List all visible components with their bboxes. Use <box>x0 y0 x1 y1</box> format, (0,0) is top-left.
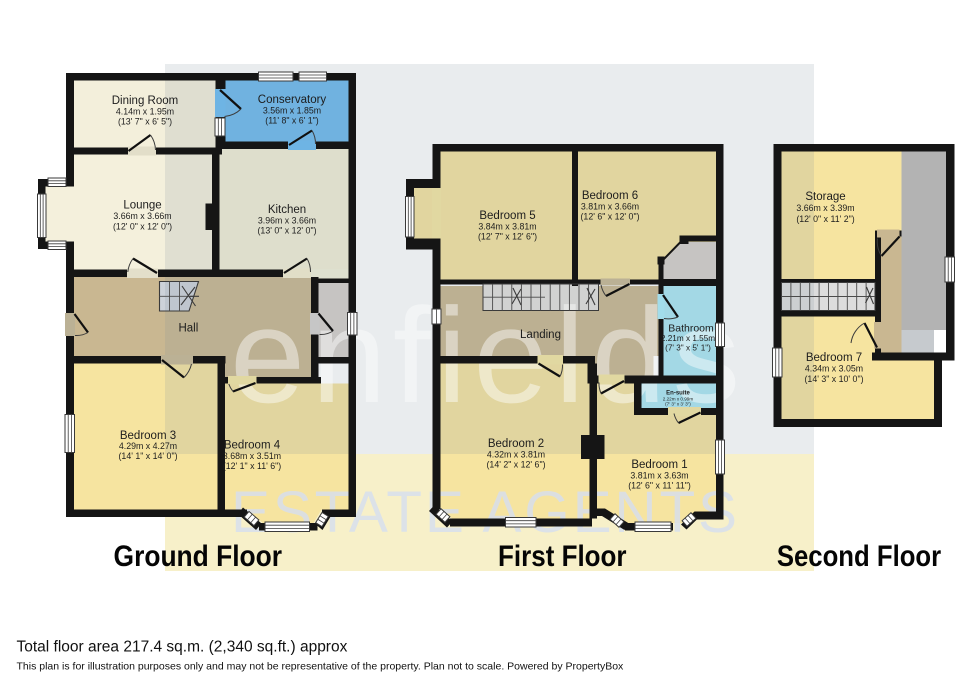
svg-text:Bedroom 7: Bedroom 7 <box>806 352 862 364</box>
svg-text:3.66m x 3.39m: 3.66m x 3.39m <box>796 203 854 213</box>
svg-text:Bedroom 1: Bedroom 1 <box>631 459 687 471</box>
svg-text:Hall: Hall <box>178 323 198 335</box>
svg-text:Storage: Storage <box>805 191 845 203</box>
svg-text:3.68m x 3.51m: 3.68m x 3.51m <box>223 451 281 461</box>
svg-text:(12' 6" x 12' 0"): (12' 6" x 12' 0") <box>581 212 640 222</box>
svg-text:(7' 3" x 5' 1"): (7' 3" x 5' 1") <box>665 344 711 353</box>
svg-text:Second Floor: Second Floor <box>777 540 942 573</box>
svg-text:3.66m x 3.66m: 3.66m x 3.66m <box>113 211 171 221</box>
svg-text:4.34m x 3.05m: 4.34m x 3.05m <box>805 364 863 374</box>
svg-text:Lounge: Lounge <box>123 200 161 212</box>
svg-text:(11' 8" x 6' 1"): (11' 8" x 6' 1") <box>265 116 319 126</box>
svg-text:3.56m x 1.85m: 3.56m x 1.85m <box>263 105 321 115</box>
svg-text:Bedroom 2: Bedroom 2 <box>488 438 544 450</box>
svg-text:3.84m x 3.81m: 3.84m x 3.81m <box>478 221 536 231</box>
svg-text:Total floor area 217.4 sq.m. (: Total floor area 217.4 sq.m. (2,340 sq.f… <box>17 639 348 656</box>
svg-text:4.29m x 4.27m: 4.29m x 4.27m <box>119 441 177 451</box>
svg-text:(7' 3" x 3' 3"): (7' 3" x 3' 3") <box>665 401 691 406</box>
svg-text:Ground Floor: Ground Floor <box>114 540 283 573</box>
svg-text:Dining Room: Dining Room <box>112 95 178 107</box>
svg-text:Kitchen: Kitchen <box>268 204 306 216</box>
svg-text:(12' 7" x 12' 6"): (12' 7" x 12' 6") <box>478 232 537 242</box>
svg-text:3.81m x 3.66m: 3.81m x 3.66m <box>581 201 639 211</box>
svg-text:(12' 1" x 11' 6"): (12' 1" x 11' 6") <box>223 461 281 471</box>
svg-text:4.32m x 3.81m: 4.32m x 3.81m <box>487 449 545 459</box>
svg-text:4.14m x 1.95m: 4.14m x 1.95m <box>116 106 174 116</box>
svg-text:Bathroom: Bathroom <box>668 323 714 335</box>
svg-text:(13' 7" x 6' 5"): (13' 7" x 6' 5") <box>118 117 172 127</box>
svg-text:Bedroom 6: Bedroom 6 <box>582 190 638 202</box>
svg-text:(14' 1" x 14' 0"): (14' 1" x 14' 0") <box>119 451 178 461</box>
svg-text:(12' 6" x 11' 11"): (12' 6" x 11' 11") <box>628 481 691 491</box>
svg-text:(12' 0" x 11' 2"): (12' 0" x 11' 2") <box>796 214 854 224</box>
svg-text:Bedroom 4: Bedroom 4 <box>224 440 281 452</box>
svg-text:(14' 3" x 10' 0"): (14' 3" x 10' 0") <box>805 374 864 384</box>
svg-text:Conservatory: Conservatory <box>258 94 327 106</box>
svg-text:2.21m x 1.55m: 2.21m x 1.55m <box>661 334 715 343</box>
svg-text:This plan is for illustration: This plan is for illustration purposes o… <box>17 661 625 673</box>
svg-text:3.96m x 3.66m: 3.96m x 3.66m <box>258 215 316 225</box>
svg-text:(13' 0" x 12' 0"): (13' 0" x 12' 0") <box>258 226 317 236</box>
svg-text:Bedroom 5: Bedroom 5 <box>479 210 535 222</box>
svg-text:3.81m x 3.63m: 3.81m x 3.63m <box>630 470 688 480</box>
svg-text:First Floor: First Floor <box>498 540 627 573</box>
svg-text:(12' 0" x 12' 0"): (12' 0" x 12' 0") <box>113 221 172 231</box>
svg-text:Landing: Landing <box>520 329 561 341</box>
svg-text:(14' 2" x 12' 6"): (14' 2" x 12' 6") <box>487 460 546 470</box>
